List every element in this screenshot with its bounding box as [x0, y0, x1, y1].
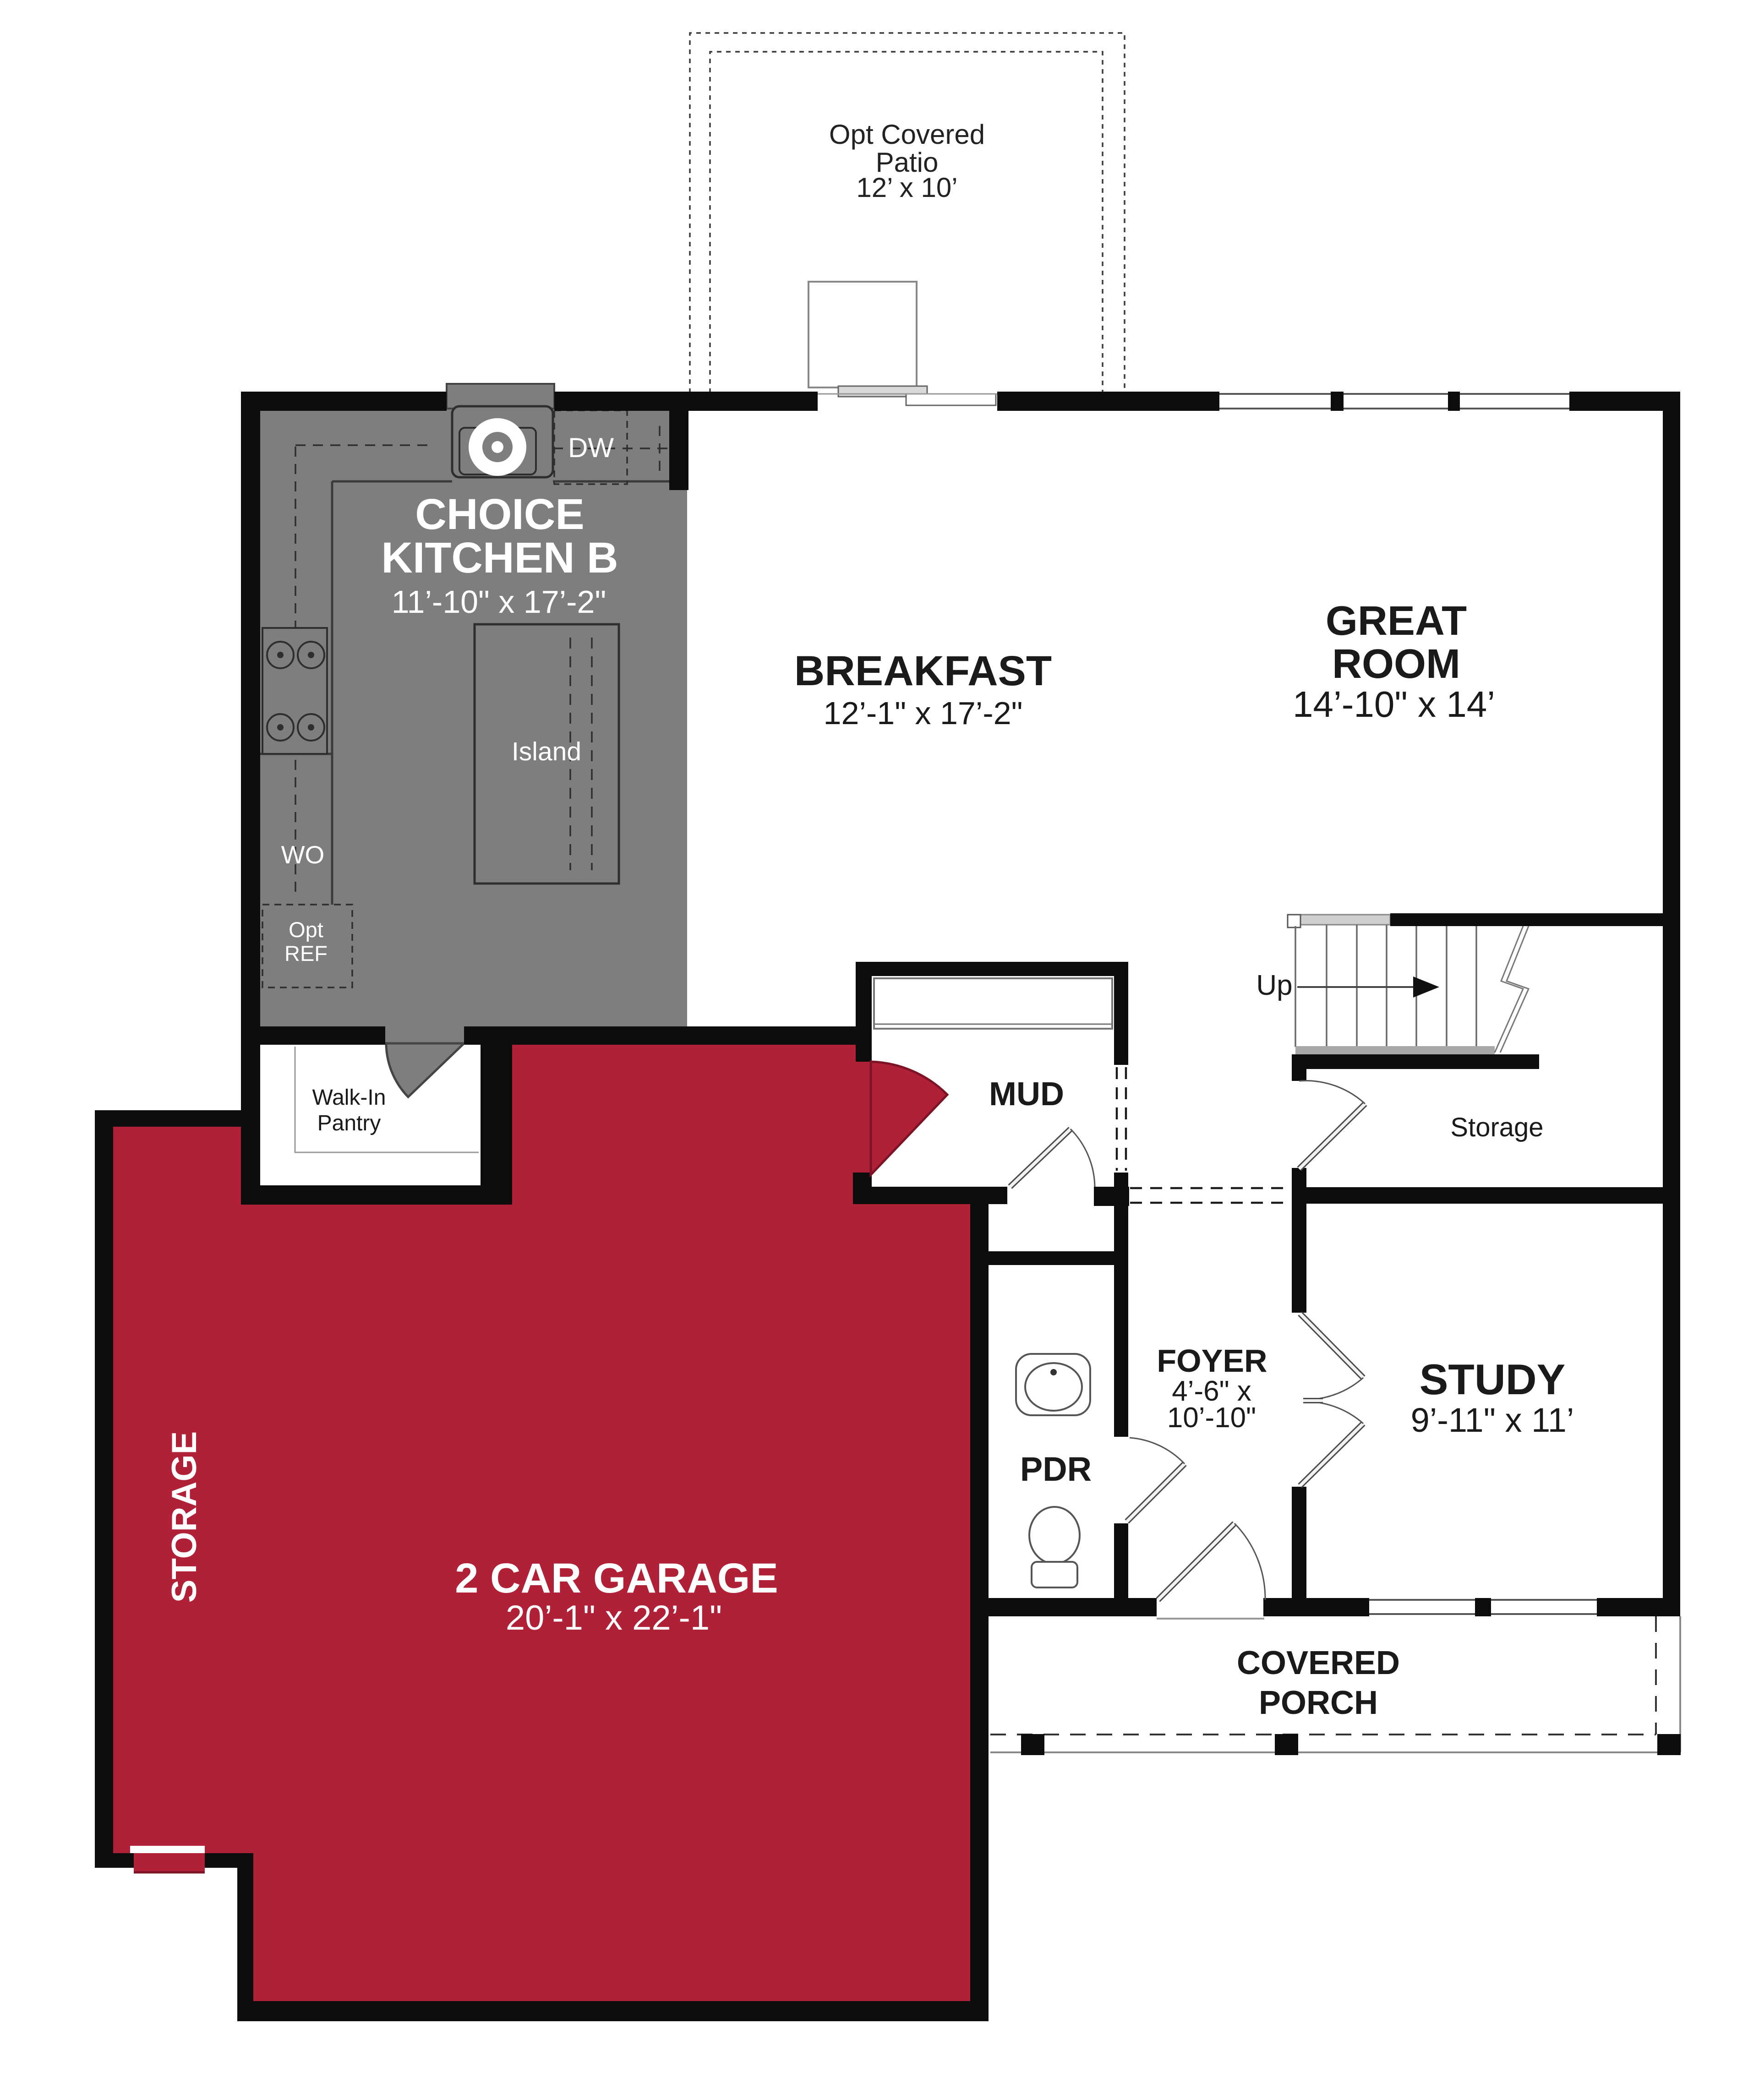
svg-text:DW: DW	[568, 432, 614, 463]
svg-text:KITCHEN B: KITCHEN B	[381, 534, 618, 582]
svg-text:REF: REF	[284, 941, 328, 965]
svg-text:9’-11" x 11’: 9’-11" x 11’	[1411, 1401, 1574, 1439]
svg-text:CHOICE: CHOICE	[415, 490, 584, 539]
svg-text:Pantry: Pantry	[317, 1111, 381, 1135]
svg-text:ROOM: ROOM	[1332, 641, 1460, 687]
svg-text:COVERED: COVERED	[1237, 1645, 1400, 1681]
svg-text:12’ x 10’: 12’ x 10’	[856, 172, 957, 203]
svg-text:STUDY: STUDY	[1420, 1355, 1566, 1403]
svg-text:PORCH: PORCH	[1259, 1685, 1378, 1721]
svg-text:Opt Covered: Opt Covered	[829, 119, 985, 150]
svg-text:WO: WO	[281, 840, 325, 869]
svg-text:Up: Up	[1256, 970, 1292, 1001]
svg-text:10’-10": 10’-10"	[1167, 1402, 1256, 1434]
svg-text:PDR: PDR	[1020, 1450, 1092, 1488]
svg-text:Storage: Storage	[1450, 1113, 1543, 1142]
svg-text:STORAGE: STORAGE	[165, 1431, 204, 1603]
svg-text:11’-10" x 17’-2": 11’-10" x 17’-2"	[392, 584, 606, 620]
svg-text:MUD: MUD	[989, 1076, 1064, 1113]
svg-text:2 CAR GARAGE: 2 CAR GARAGE	[455, 1555, 778, 1602]
svg-text:12’-1" x 17’-2": 12’-1" x 17’-2"	[824, 695, 1023, 731]
svg-text:GREAT: GREAT	[1326, 598, 1467, 644]
svg-text:14’-10" x 14’: 14’-10" x 14’	[1293, 684, 1495, 725]
svg-text:Walk-In: Walk-In	[312, 1085, 386, 1110]
svg-text:Island: Island	[512, 737, 581, 766]
svg-text:20’-1" x 22’-1": 20’-1" x 22’-1"	[506, 1598, 722, 1637]
svg-text:FOYER: FOYER	[1157, 1343, 1267, 1379]
svg-text:BREAKFAST: BREAKFAST	[794, 648, 1052, 694]
svg-text:Opt: Opt	[289, 917, 323, 942]
